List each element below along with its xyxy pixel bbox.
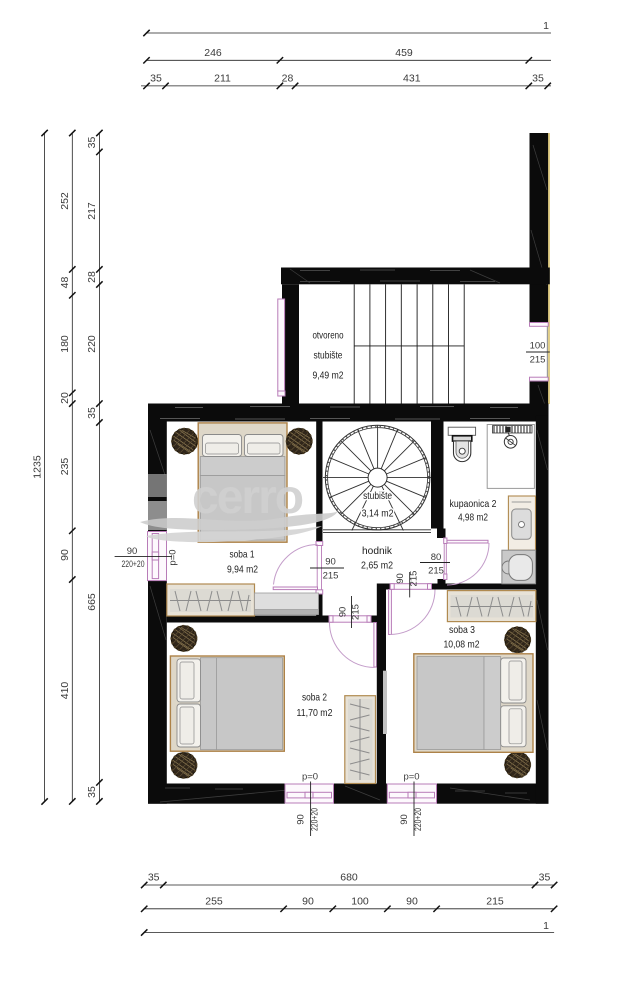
svg-text:180: 180: [59, 335, 71, 353]
svg-text:80: 80: [431, 552, 442, 563]
svg-text:otvoreno: otvoreno: [313, 331, 344, 342]
svg-text:100: 100: [530, 341, 546, 352]
svg-text:235: 235: [59, 458, 71, 476]
svg-text:90: 90: [325, 557, 336, 568]
svg-text:90: 90: [127, 546, 138, 557]
svg-text:stubište: stubište: [314, 351, 343, 362]
svg-text:2,65 m2: 2,65 m2: [361, 561, 393, 572]
svg-text:1235: 1235: [32, 455, 44, 479]
svg-text:28: 28: [86, 271, 98, 283]
svg-text:215: 215: [530, 355, 546, 366]
svg-text:220: 220: [86, 335, 98, 353]
svg-text:35: 35: [148, 872, 160, 884]
svg-text:220+20: 220+20: [413, 808, 424, 831]
svg-text:215: 215: [351, 604, 362, 620]
svg-text:11,70 m2: 11,70 m2: [297, 708, 333, 719]
svg-text:255: 255: [205, 895, 223, 907]
svg-text:680: 680: [340, 872, 358, 884]
svg-text:20: 20: [59, 392, 71, 404]
svg-text:35: 35: [150, 73, 162, 85]
svg-text:431: 431: [403, 73, 421, 85]
svg-text:215: 215: [428, 566, 444, 577]
svg-text:1: 1: [543, 20, 549, 32]
svg-text:90: 90: [399, 814, 410, 825]
svg-text:211: 211: [214, 73, 231, 85]
svg-text:48: 48: [59, 277, 71, 289]
svg-text:252: 252: [59, 192, 71, 210]
svg-text:100: 100: [351, 895, 369, 907]
svg-text:459: 459: [395, 47, 413, 59]
svg-text:hodnik: hodnik: [362, 546, 393, 557]
svg-text:stubište: stubište: [363, 491, 392, 502]
svg-text:90: 90: [59, 549, 71, 561]
svg-text:28: 28: [282, 73, 294, 85]
svg-text:3,14 m2: 3,14 m2: [362, 509, 394, 520]
svg-text:90: 90: [302, 895, 314, 907]
svg-text:kupaonica 2: kupaonica 2: [450, 499, 497, 510]
svg-text:217: 217: [86, 202, 98, 220]
svg-text:215: 215: [323, 571, 339, 582]
svg-text:246: 246: [204, 47, 222, 59]
svg-text:10,08 m2: 10,08 m2: [444, 640, 480, 651]
svg-text:soba 1: soba 1: [230, 550, 255, 561]
svg-text:90: 90: [296, 814, 307, 825]
svg-text:9,49 m2: 9,49 m2: [313, 371, 344, 382]
svg-text:410: 410: [59, 682, 71, 700]
svg-text:soba 3: soba 3: [449, 625, 475, 636]
svg-text:665: 665: [86, 593, 98, 611]
svg-text:35: 35: [86, 137, 98, 149]
svg-text:soba 2: soba 2: [302, 693, 327, 704]
svg-text:220+20: 220+20: [310, 808, 321, 831]
svg-text:p=0: p=0: [403, 772, 419, 783]
svg-text:90: 90: [395, 573, 406, 584]
svg-text:1: 1: [543, 920, 549, 932]
svg-text:35: 35: [539, 872, 551, 884]
svg-text:90: 90: [406, 895, 418, 907]
svg-text:215: 215: [486, 895, 504, 907]
svg-text:cerro: cerro: [192, 471, 303, 524]
svg-text:220+20: 220+20: [122, 559, 145, 570]
svg-text:p=0: p=0: [302, 772, 318, 783]
svg-text:9,94 m2: 9,94 m2: [227, 565, 258, 576]
svg-text:215: 215: [409, 571, 420, 587]
svg-text:35: 35: [86, 786, 98, 798]
svg-text:35: 35: [86, 407, 98, 419]
svg-text:4,98 m2: 4,98 m2: [458, 513, 488, 524]
svg-text:p=0: p=0: [168, 549, 179, 565]
svg-text:35: 35: [532, 73, 544, 85]
svg-text:90: 90: [338, 607, 349, 618]
